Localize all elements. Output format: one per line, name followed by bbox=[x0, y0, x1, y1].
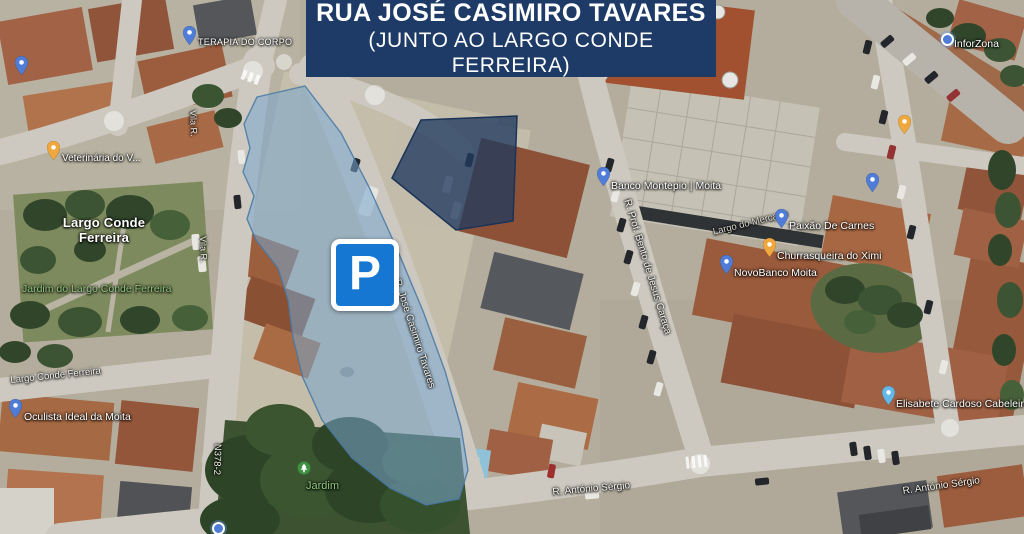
title-banner: RUA JOSÉ CASIMIRO TAVARES (JUNTO AO LARG… bbox=[306, 0, 716, 77]
highlight-overlays bbox=[0, 0, 1024, 534]
banner-subtitle: (JUNTO AO LARGO CONDE FERREIRA) bbox=[306, 28, 716, 78]
poi-dot-inforzona bbox=[941, 33, 954, 46]
poi-dot-unlabeled-bottomleft bbox=[212, 522, 225, 534]
poi-label-churrasqueira-do-ximi: Churrasqueira do Ximi bbox=[777, 250, 881, 262]
banner-title: RUA JOSÉ CASIMIRO TAVARES bbox=[316, 0, 706, 28]
poi-label-elisabete-cabeleireiro: Elisabete Cardoso Cabeleireiro bbox=[896, 398, 1024, 410]
poi-label-paixao-de-carnes: Paixão De Carnes bbox=[789, 220, 874, 232]
parking-sign: P bbox=[331, 239, 399, 311]
poi-pin-banco-montepio bbox=[597, 167, 610, 186]
map-screenshot: Largo Conde Ferreira Jardim do Largo Con… bbox=[0, 0, 1024, 534]
poi-label-terapia-do-corpo: TERAPIA DO CORPO bbox=[198, 37, 292, 47]
park-label-jardim-do-largo-conde-ferreira: Jardim do Largo Conde Ferreira bbox=[22, 283, 171, 295]
park-label-jardim: Jardim bbox=[306, 480, 339, 493]
place-label-largo-conde-ferreira: Largo Conde Ferreira bbox=[54, 216, 154, 246]
road-label-vila-r-2: Vila R. bbox=[198, 236, 209, 263]
poi-pin-novobanco-moita bbox=[720, 255, 733, 274]
poi-pin-oculista-ideal bbox=[9, 399, 22, 418]
road-label-vila-r-1: Vila R. bbox=[188, 110, 199, 137]
poi-label-banco-montepio: Banco Montepio | Moita bbox=[611, 180, 721, 192]
road-label-n378-2: N378-2 bbox=[210, 444, 222, 476]
parking-sign-letter: P bbox=[349, 250, 381, 298]
poi-pin-paixao-de-carnes bbox=[775, 209, 788, 228]
poi-pin-terapia-do-corpo bbox=[183, 26, 196, 45]
poi-label-veterinaria: Veterinária do V... bbox=[62, 153, 141, 165]
poi-pin-churrasqueira-do-ximi bbox=[763, 238, 776, 257]
poi-label-inforzona: InforZona bbox=[954, 38, 999, 50]
poi-pin-unlabeled-topleft bbox=[15, 56, 28, 75]
poi-pin-unlabeled-topright bbox=[898, 115, 911, 134]
poi-pin-unlabeled-midright bbox=[866, 173, 879, 192]
poi-label-oculista-ideal: Oculista Ideal da Moita bbox=[24, 411, 131, 423]
poi-label-novobanco-moita: NovoBanco Moita bbox=[734, 267, 817, 279]
park-tree-icon bbox=[297, 461, 311, 475]
poi-pin-elisabete-cabeleireiro bbox=[882, 386, 895, 405]
poi-pin-veterinaria bbox=[47, 141, 60, 160]
secondary-area-highlight bbox=[392, 116, 517, 230]
